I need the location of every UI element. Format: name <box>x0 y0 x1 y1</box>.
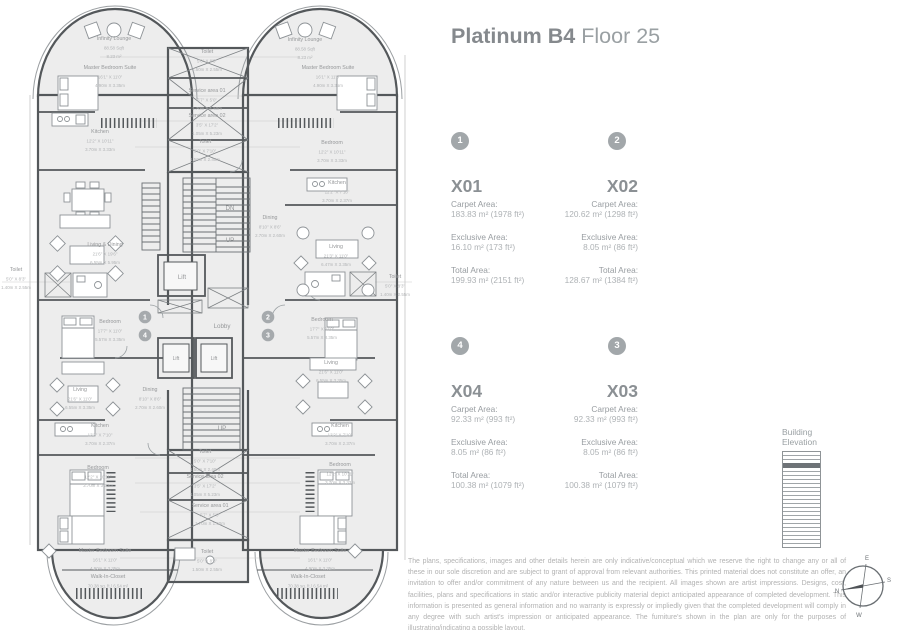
exclusive-area-value: 8.05 m² (86 ft²) <box>451 447 547 457</box>
plan-room-label: 16'1" X 11'0" <box>308 558 333 563</box>
plan-room-label: Lift <box>211 356 218 362</box>
plan-room-label: Master Bedroom Suite <box>302 65 355 71</box>
plan-room-label: 5'0" X 8'3" <box>385 284 405 289</box>
carpet-area-label: Carpet Area: <box>542 404 638 414</box>
exclusive-area-label: Exclusive Area: <box>451 232 547 242</box>
unit-marker-badge: 2 <box>608 132 626 150</box>
plan-room-label: Infinity Lounge <box>97 36 132 42</box>
exclusive-area-label: Exclusive Area: <box>542 232 638 242</box>
plan-room-label: 5'0" X 8'3" <box>197 559 217 564</box>
total-area-label: Total Area: <box>451 265 547 275</box>
plan-room-label: Lobby <box>214 323 232 330</box>
plan-room-label: 5'0" X 8'3" <box>6 277 26 282</box>
plan-room-label: Kitchen <box>331 423 349 429</box>
unit-code: X01 <box>451 177 547 196</box>
plan-room-label: 5'0" X 8'3" <box>197 59 217 64</box>
plan-room-label: 1.40m X 2.55m <box>1 285 31 290</box>
plan-room-label: 8.23 m² <box>107 54 122 59</box>
plan-room-label: UP <box>226 237 235 244</box>
plan-room-label: 4.90m X 3.35m <box>90 566 120 571</box>
plan-room-label: Walk-In-Closet <box>91 574 126 580</box>
plan-room-label: 6.55m X 3.35m <box>316 378 346 383</box>
plan-room-label: Master Bedroom Suite <box>79 548 132 554</box>
plan-room-label: Toilet <box>10 267 23 273</box>
plan-room-label: 1.50m X 2.40m <box>190 157 220 162</box>
plan-room-label: Living <box>324 360 338 366</box>
unit-info-x03: 3 X03 Carpet Area: 92.33 m² (993 ft²) Ex… <box>542 335 638 490</box>
plan-room-label: Lift <box>178 274 187 281</box>
plan-room-label: 21'3" X 11'0" <box>324 254 349 259</box>
plan-room-label: 3.70m X 3.33m <box>83 483 113 488</box>
plan-room-label: 3.70m X 3.33m <box>325 480 355 485</box>
building-elevation: Building Elevation <box>782 427 826 548</box>
plan-room-label: 12'2" X 7'10" <box>328 433 353 438</box>
plan-room-label: 12'2" X 7'10" <box>88 433 113 438</box>
total-area-label: Total Area: <box>451 470 547 480</box>
project-name: Platinum B4 <box>451 24 575 48</box>
plan-room-label: Toilet <box>201 549 214 555</box>
plan-room-label: 3.70m X 2.37m <box>322 198 352 203</box>
plan-room-label: 1.50m X 2.55m <box>192 67 222 72</box>
plan-room-label: 5'7" X 5'0" <box>200 513 220 518</box>
plan-room-label: 88.58 Sqft <box>104 46 125 51</box>
plan-room-label: 1.50m X 2.55m <box>192 567 222 572</box>
plan-room-label: 12'2" X 10'11" <box>87 139 114 144</box>
plan-room-label: 17'7" X 11'0" <box>98 329 123 334</box>
floor-label: Floor 25 <box>581 24 660 48</box>
building-elevation-bar <box>782 451 821 548</box>
plan-room-label: 6.55m X 5.95m <box>90 260 120 265</box>
plan-unit-marker-number: 3 <box>266 333 270 340</box>
unit-marker-badge: 3 <box>608 337 626 355</box>
plan-room-label: 1.50m X 2.40m <box>190 467 220 472</box>
plan-room-label: 3.70m X 2.37m <box>325 441 355 446</box>
unit-info-x01: 1 X01 Carpet Area: 183.83 m² (1978 ft²) … <box>451 130 547 285</box>
plan-room-label: 16'1" X 11'0" <box>98 75 123 80</box>
exclusive-area-value: 16.10 m² (173 ft²) <box>451 242 547 252</box>
compass-needle <box>842 584 863 590</box>
plan-room-label: 70.38 sq. ft./ 6.54 m² <box>88 584 129 589</box>
building-elevation-label-1: Building <box>782 427 826 437</box>
plan-room-label: 3.70m X 3.33m <box>85 147 115 152</box>
plan-room-label: Kitchen <box>91 423 109 429</box>
plan-room-label: Toilet <box>201 49 214 55</box>
carpet-area-label: Carpet Area: <box>451 404 547 414</box>
plan-room-label: 8'10" X 8'6" <box>259 225 282 230</box>
exclusive-area-value: 8.05 m² (86 ft²) <box>542 447 638 457</box>
plan-room-label: 1.40m X 2.55m <box>380 292 410 297</box>
plan-unit-marker-number: 4 <box>143 333 147 340</box>
carpet-area-value: 92.33 m² (993 ft²) <box>542 414 638 424</box>
carpet-area-label: Carpet Area: <box>542 199 638 209</box>
plan-room-label: Service area 01 <box>191 503 228 509</box>
plan-room-label: 2.70m X 2.60m <box>255 233 285 238</box>
unit-info-x04: 4 X04 Carpet Area: 92.33 m² (993 ft²) Ex… <box>451 335 547 490</box>
plan-room-label: 17'7" X 11'0" <box>310 327 335 332</box>
plan-room-label: 1.70m X 1.50m <box>192 106 222 111</box>
plan-room-label: 4.90m X 3.35m <box>313 83 343 88</box>
plan-room-label: Walk-In-Closet <box>291 574 326 580</box>
plan-room-label: 8.23 m² <box>298 55 313 60</box>
plan-room-label: Bedroom <box>99 319 121 325</box>
plan-room-label: 6.47m X 3.35m <box>321 262 351 267</box>
plan-room-label: Dining <box>262 215 277 221</box>
plan-room-label: Infinity Lounge <box>288 37 323 43</box>
plan-room-label: 6.55m X 3.35m <box>65 405 95 410</box>
unit-info-x02: 2 X02 Carpet Area: 120.62 m² (1298 ft²) … <box>542 130 638 285</box>
plan-room-label: 70.38 sq. ft./ 6.54 m² <box>288 584 329 589</box>
carpet-area-label: Carpet Area: <box>451 199 547 209</box>
plan-room-label: 21'6" X 11'0" <box>68 397 93 402</box>
unit-code: X03 <box>542 382 638 401</box>
compass-n: N <box>835 589 839 595</box>
page-title: Platinum B4Floor 25 <box>451 24 660 49</box>
building-elevation-label-2: Elevation <box>782 437 826 447</box>
total-area-value: 199.93 m² (2151 ft²) <box>451 275 547 285</box>
plan-room-label: 21'6" X 19'6" <box>93 252 118 257</box>
plan-room-label: Lift <box>173 356 180 362</box>
plan-room-label: Kitchen <box>91 129 109 135</box>
plan-room-label: 3.70m X 3.33m <box>317 158 347 163</box>
plan-room-label: Master Bedroom Suite <box>294 548 347 554</box>
plan-room-label: 8'10" X 8'6" <box>139 397 162 402</box>
plan-room-label: Bedroom <box>321 140 343 146</box>
compass-e: E <box>865 556 869 562</box>
plan-unit-marker-number: 2 <box>266 315 270 322</box>
plan-room-label: 16'1" X 11'0" <box>316 75 341 80</box>
plan-room-label: Bedroom <box>311 317 333 323</box>
plan-room-label: Living <box>73 387 87 393</box>
plan-room-label: 12'2" X 7'10" <box>325 190 350 195</box>
total-area-value: 100.38 m² (1079 ft²) <box>542 480 638 490</box>
plan-room-label: Toilet <box>199 139 212 145</box>
exclusive-area-label: Exclusive Area: <box>451 437 547 447</box>
plan-room-label: 5.57m X 3.35m <box>307 335 337 340</box>
plan-room-label: Service area 02 <box>188 113 225 119</box>
plan-room-label: Service area 01 <box>188 88 225 94</box>
plan-room-label: 2.70m X 2.60m <box>135 405 165 410</box>
plan-room-label: Living & Dining <box>87 242 122 248</box>
plan-room-label: 4.90m X 3.35m <box>95 83 125 88</box>
plan-room-label: Master Bedroom Suite <box>84 65 137 71</box>
plan-room-label: 4.90m X 3.35m <box>305 566 335 571</box>
plan-room-label: 12'2" X 10'11" <box>85 475 112 480</box>
carpet-area-value: 183.83 m² (1978 ft²) <box>451 209 547 219</box>
plan-room-label: Bedroom <box>329 462 351 468</box>
compass-s: S <box>887 578 891 584</box>
plan-room-label: 5'0" X 7'10" <box>194 459 217 464</box>
plan-room-label: Toilet <box>199 449 212 455</box>
plan-room-label: Dining <box>142 387 157 393</box>
plan-room-label: 1.05m X 5.23m <box>190 492 220 497</box>
plan-room-label: 16'1" X 11'0" <box>93 558 118 563</box>
exclusive-area-value: 8.05 m² (86 ft²) <box>542 242 638 252</box>
plan-room-label: 5'0" X 7'10" <box>194 149 217 154</box>
total-area-value: 100.38 m² (1079 ft²) <box>451 480 547 490</box>
plan-room-label: 5'7" X 5'0" <box>197 98 217 103</box>
unit-code: X04 <box>451 382 547 401</box>
disclaimer-text: The plans, specifications, images and ot… <box>408 556 846 630</box>
floor-plan: Infinity Lounge88.58 Sqft8.23 m²Master B… <box>0 0 435 630</box>
carpet-area-value: 92.33 m² (993 ft²) <box>451 414 547 424</box>
plan-room-label: 12'2" X 10'11" <box>319 150 346 155</box>
unit-code: X02 <box>542 177 638 196</box>
plan-room-label: Service area 02 <box>186 474 223 480</box>
compass-w: W <box>856 613 862 619</box>
plan-room-label: Bedroom <box>87 465 109 471</box>
plan-room-label: 88.58 Sqft <box>295 47 316 52</box>
exclusive-area-label: Exclusive Area: <box>542 437 638 447</box>
plan-room-label: 3'5" X 17'2" <box>194 484 217 489</box>
plan-room-label: Toilet <box>389 274 402 280</box>
plan-room-label: 1.05m X 5.23m <box>192 131 222 136</box>
plan-room-label: 12'2" X 10'11" <box>327 472 354 477</box>
plan-room-label: 5.57m X 3.35m <box>95 337 125 342</box>
plan-room-label: 1.70m X 1.50m <box>195 521 225 526</box>
compass-icon: N E S W <box>833 548 893 622</box>
plan-room-label: Kitchen <box>328 180 346 186</box>
plan-unit-marker-number: 1 <box>143 315 147 322</box>
plan-room-label: 3'5" X 17'2" <box>196 123 219 128</box>
total-area-label: Total Area: <box>542 265 638 275</box>
plan-room-label: UP <box>218 425 227 432</box>
plan-room-label: DN <box>226 205 235 212</box>
total-area-value: 128.67 m² (1384 ft²) <box>542 275 638 285</box>
unit-marker-badge: 1 <box>451 132 469 150</box>
total-area-label: Total Area: <box>542 470 638 480</box>
brochure-page: Infinity Lounge88.58 Sqft8.23 m²Master B… <box>0 0 897 630</box>
plan-room-label: 3.70m X 2.37m <box>85 441 115 446</box>
unit-marker-badge: 4 <box>451 337 469 355</box>
plan-room-label: 21'6" X 11'0" <box>319 370 344 375</box>
highlighted-floor-stripe <box>783 463 820 468</box>
carpet-area-value: 120.62 m² (1298 ft²) <box>542 209 638 219</box>
plan-room-label: Living <box>329 244 343 250</box>
